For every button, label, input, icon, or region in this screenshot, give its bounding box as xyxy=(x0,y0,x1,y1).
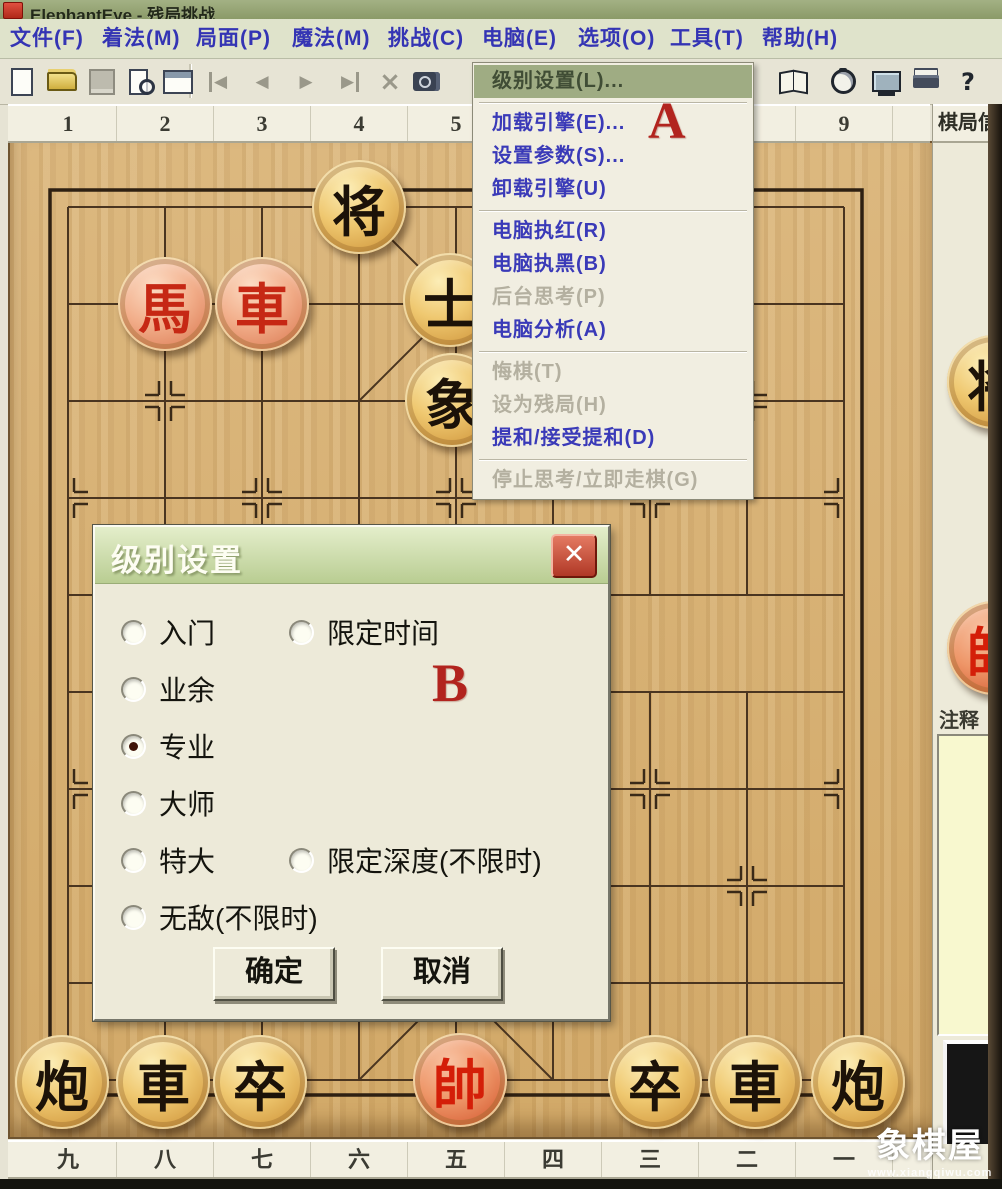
previous-move-icon[interactable]: ◀ xyxy=(244,65,280,98)
help-icon[interactable]: ? xyxy=(950,65,986,98)
menubar-item-6[interactable]: 电脑(E) xyxy=(478,19,561,58)
computer-menu-item-14[interactable]: 提和/接受提和(D) xyxy=(474,422,752,455)
snapshot-icon[interactable] xyxy=(408,65,444,98)
menubar-item-4[interactable]: 魔法(M) xyxy=(288,19,374,58)
file-label: 三 xyxy=(602,1142,699,1177)
menubar-item-7[interactable]: 选项(O) xyxy=(574,19,659,58)
radio-label: 业余 xyxy=(159,669,215,709)
radio-label: 特大 xyxy=(159,840,215,880)
menubar-item-9[interactable]: 帮助(H) xyxy=(758,19,842,58)
computer-menu-item-7[interactable]: 电脑执红(R) xyxy=(474,215,752,248)
piece-black[interactable]: 卒 xyxy=(608,1035,702,1129)
level-option[interactable]: 无敌(不限时) xyxy=(121,897,318,937)
level-option[interactable]: 限定时间 xyxy=(289,612,439,652)
save-icon[interactable] xyxy=(84,65,120,98)
radio-label: 限定深度(不限时) xyxy=(327,840,542,880)
file-labels-top: 123456789 xyxy=(8,104,930,143)
file-labels-bottom: 九八七六五四三二一 xyxy=(8,1140,930,1179)
computer-menu-item-9: 后台思考(P) xyxy=(474,281,752,314)
file-label: 八 xyxy=(117,1142,214,1177)
computer-menu-item-16: 停止思考/立即走棋(G) xyxy=(474,464,752,497)
radio-label: 入门 xyxy=(159,612,215,652)
level-option[interactable]: 业余 xyxy=(121,669,215,709)
computer-menu-dropdown: 级别设置(L)...加载引擎(E)...设置参数(S)...卸载引擎(U)电脑执… xyxy=(472,62,754,500)
watermark-title: 象棋屋 xyxy=(858,1118,1002,1167)
computer-menu-item-5[interactable]: 卸载引擎(U) xyxy=(474,173,752,206)
watermark: 象棋屋 www.xiangqiwu.com xyxy=(858,1118,1002,1179)
radio-button[interactable] xyxy=(289,848,314,873)
computer-menu-item-8[interactable]: 电脑执黑(B) xyxy=(474,248,752,281)
title-bar: ElephantEye - 残局挑战 xyxy=(0,0,1002,19)
piece-red[interactable]: 車 xyxy=(215,257,309,351)
radio-button[interactable] xyxy=(121,620,146,645)
radio-label: 大师 xyxy=(159,783,215,823)
radio-button-selected[interactable] xyxy=(121,734,146,759)
close-icon[interactable]: ✕ xyxy=(551,534,597,578)
level-option[interactable]: 特大 xyxy=(121,840,215,880)
computer-menu-item-1[interactable]: 级别设置(L)... xyxy=(474,65,752,98)
computer-menu-item-4[interactable]: 设置参数(S)... xyxy=(474,140,752,173)
file-label: 1 xyxy=(20,106,117,141)
piece-red[interactable]: 帥 xyxy=(413,1033,507,1127)
file-label: 六 xyxy=(311,1142,408,1177)
menu-separator xyxy=(479,459,747,460)
open-file-icon[interactable] xyxy=(44,65,80,98)
radio-label: 专业 xyxy=(159,726,215,766)
annotation-b: B xyxy=(432,652,468,714)
file-label: 二 xyxy=(699,1142,796,1177)
timer-icon[interactable] xyxy=(825,65,861,98)
piece-black[interactable]: 車 xyxy=(116,1035,210,1129)
file-label: 2 xyxy=(117,106,214,141)
file-label: 七 xyxy=(214,1142,311,1177)
next-move-icon[interactable]: ▶ xyxy=(288,65,324,98)
level-option[interactable]: 专业 xyxy=(121,726,215,766)
file-label: 3 xyxy=(214,106,311,141)
radio-label: 无敌(不限时) xyxy=(159,897,318,937)
app-icon xyxy=(3,2,23,19)
first-move-icon[interactable]: ◀ xyxy=(200,65,236,98)
file-label: 9 xyxy=(796,106,893,141)
level-option[interactable]: 大师 xyxy=(121,783,215,823)
engine-icon[interactable] xyxy=(868,65,904,98)
radio-button[interactable] xyxy=(121,905,146,930)
annotation-a: A xyxy=(648,92,686,151)
menu-separator xyxy=(479,210,747,211)
menu-separator xyxy=(479,102,747,103)
level-option[interactable]: 限定深度(不限时) xyxy=(289,840,542,880)
menubar-item-2[interactable]: 着法(M) xyxy=(98,19,184,58)
ok-button[interactable]: 确定 xyxy=(213,947,335,1001)
menu-bar: 文件(F)着法(M)局面(P)魔法(M)挑战(C)电脑(E)选项(O)工具(T)… xyxy=(0,19,1002,59)
radio-button[interactable] xyxy=(121,791,146,816)
computer-menu-item-3[interactable]: 加载引擎(E)... xyxy=(474,107,752,140)
delete-move-icon[interactable]: × xyxy=(372,65,408,98)
computer-menu-item-10[interactable]: 电脑分析(A) xyxy=(474,314,752,347)
piece-black[interactable]: 炮 xyxy=(811,1035,905,1129)
window-right-edge xyxy=(988,104,1002,1189)
file-label: 4 xyxy=(311,106,408,141)
computer-menu-item-13: 设为残局(H) xyxy=(474,389,752,422)
comment-label: 注释 xyxy=(939,704,979,733)
dialog-title: 级别设置 xyxy=(111,535,243,580)
piece-black[interactable]: 車 xyxy=(708,1035,802,1129)
radio-button[interactable] xyxy=(121,848,146,873)
file-label: 四 xyxy=(505,1142,602,1177)
file-label: 五 xyxy=(408,1142,505,1177)
menubar-item-5[interactable]: 挑战(C) xyxy=(384,19,468,58)
radio-button[interactable] xyxy=(289,620,314,645)
menubar-item-3[interactable]: 局面(P) xyxy=(192,19,275,58)
radio-label: 限定时间 xyxy=(327,612,439,652)
cancel-button[interactable]: 取消 xyxy=(381,947,503,1001)
piece-black[interactable]: 卒 xyxy=(213,1035,307,1129)
dialog-title-bar[interactable]: 级别设置 ✕ xyxy=(95,527,608,584)
piece-red[interactable]: 馬 xyxy=(118,257,212,351)
menubar-item-8[interactable]: 工具(T) xyxy=(666,19,748,58)
menu-separator xyxy=(479,351,747,352)
window-bottom-edge xyxy=(0,1179,1002,1189)
opening-book-icon[interactable] xyxy=(775,65,811,98)
file-label: 九 xyxy=(20,1142,117,1177)
menubar-item-1[interactable]: 文件(F) xyxy=(6,19,88,58)
print-icon[interactable] xyxy=(908,65,944,98)
window-title: ElephantEye - 残局挑战 xyxy=(30,1,215,19)
level-option[interactable]: 入门 xyxy=(121,612,215,652)
watermark-url: www.xiangqiwu.com xyxy=(858,1167,1002,1179)
last-move-icon[interactable]: ▶ xyxy=(332,65,368,98)
level-settings-dialog: 级别设置 ✕ 入门业余专业大师特大无敌(不限时)限定时间限定深度(不限时) 确定… xyxy=(93,525,610,1021)
computer-menu-item-12: 悔棋(T) xyxy=(474,356,752,389)
board-properties-icon[interactable] xyxy=(160,65,196,98)
print-preview-icon[interactable] xyxy=(124,65,160,98)
application-window: ElephantEye - 残局挑战 文件(F)着法(M)局面(P)魔法(M)挑… xyxy=(0,0,1002,1189)
piece-black[interactable]: 将 xyxy=(312,160,406,254)
new-document-icon[interactable] xyxy=(4,65,40,98)
piece-black[interactable]: 炮 xyxy=(15,1035,109,1129)
radio-button[interactable] xyxy=(121,677,146,702)
